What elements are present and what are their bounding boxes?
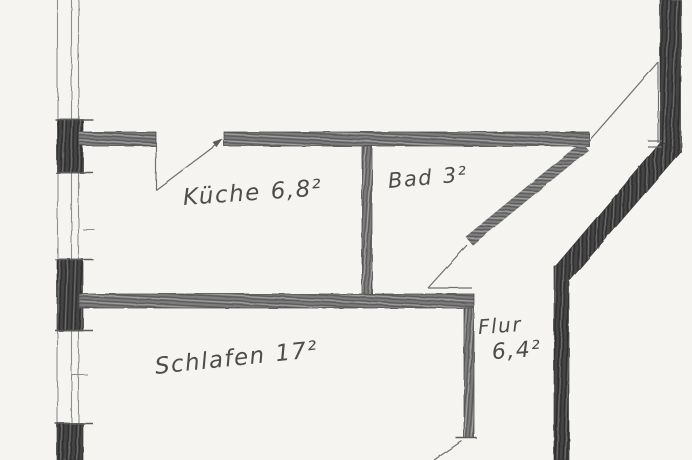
wall-kueche-bad-top-segment [224,132,589,146]
wall-kueche-bad-divider [362,146,372,298]
floorplan-drawing [0,0,692,460]
wall-left-pier-bottom [57,423,83,460]
room-name: Flur [477,312,523,339]
room-name: Bad [387,165,434,193]
wall-flur-left [464,308,474,438]
room-area: 3² [442,162,469,188]
room-area: 17² [274,337,319,367]
room-area: 6,8² [270,175,323,205]
floorplan-canvas: Küche6,8² Bad3² Flur6,4² Schlafen17² [0,0,692,460]
room-name: Küche [182,180,262,211]
room-label-flur: Flur6,4² [477,311,542,366]
wall-outer-right-bottom [554,266,569,460]
wall-outer-right-top [660,0,681,152]
wall-schlafen-top [79,294,474,308]
room-area: 6,4² [491,337,542,365]
wall-kueche-top-left-segment [79,132,156,146]
